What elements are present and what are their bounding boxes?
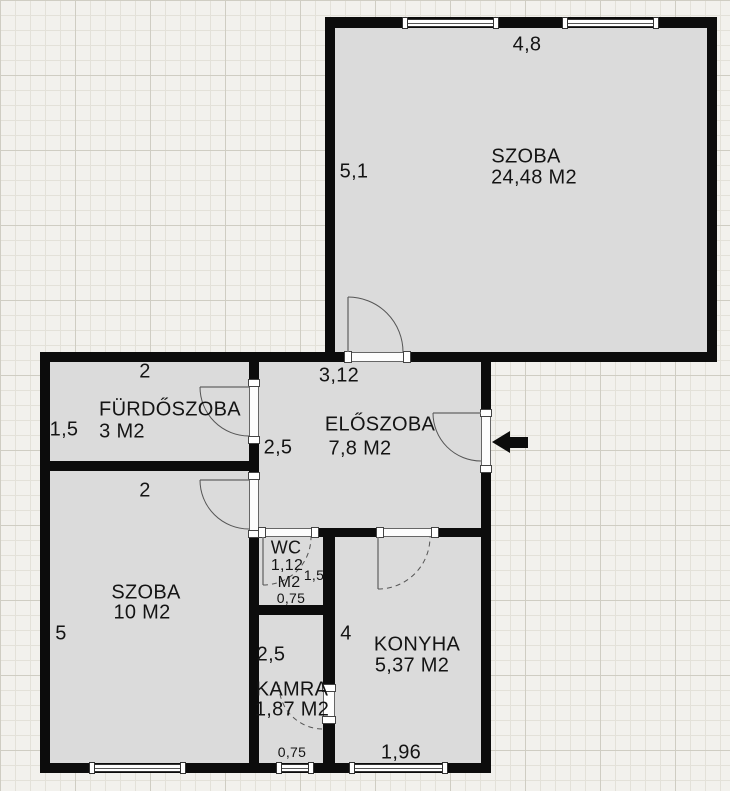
dim-szoba-nagy-width: 4,8: [513, 34, 542, 57]
dim-szoba-kis-height: 5: [55, 623, 66, 646]
dim-wc-width: 0,75: [277, 590, 305, 606]
dim-furdoszoba-width: 2: [139, 361, 150, 384]
dim-szoba-kis-width: 2: [139, 480, 150, 503]
door-opening-szoba-nagy: [345, 352, 410, 362]
dim-wc-height: 1,5: [304, 567, 324, 583]
window-konyha: [350, 764, 447, 772]
dim-eloszoba-height: 2,5: [264, 437, 293, 460]
window-kamra: [277, 764, 313, 772]
room-label-konyha: KONYHA: [374, 634, 460, 657]
dim-kamra-width: 0,75: [278, 744, 306, 760]
room-label-furdoszoba: FÜRDŐSZOBA: [99, 399, 241, 422]
room-floor-szoba-nagy: [335, 28, 707, 352]
wall-wc-bottom: [249, 605, 335, 615]
area-label-eloszoba: 7,8 M2: [329, 438, 392, 461]
window-szoba-nagy-1: [403, 19, 498, 27]
area-label-furdoszoba: 3 M2: [99, 421, 145, 444]
wall-middle-right-vertical: [323, 537, 335, 763]
wall-szoba-nagy-right: [707, 17, 717, 362]
dim-szoba-nagy-height: 5,1: [340, 161, 369, 184]
dim-furdoszoba-height: 1,5: [50, 419, 79, 442]
floor-plan: 4,8 5,1 SZOBA 24,48 M2 2 1,5 FÜRDŐSZOBA …: [0, 0, 730, 791]
wall-szoba-nagy-left: [325, 17, 335, 362]
area-label-szoba-nagy: 24,48 M2: [491, 167, 577, 190]
wall-outer-left: [40, 352, 50, 773]
door-opening-wc: [259, 528, 318, 537]
door-opening-furdoszoba: [249, 380, 259, 443]
area-label-konyha: 5,37 M2: [375, 655, 449, 678]
area-label-kamra: 1,87 M2: [255, 699, 329, 722]
room-label-szoba-nagy: SZOBA: [491, 146, 560, 169]
dim-konyha-width: 1,96: [381, 742, 421, 765]
window-szoba-nagy-2: [563, 19, 658, 27]
dim-konyha-height: 4: [340, 623, 351, 646]
dim-eloszoba-width: 3,12: [319, 365, 359, 388]
entrance-door-opening: [481, 410, 491, 472]
wall-furdoszoba-bottom: [40, 461, 259, 471]
dim-kamra-height: 2,5: [257, 644, 286, 667]
door-opening-konyha: [377, 528, 438, 537]
room-label-eloszoba: ELŐSZOBA: [325, 414, 435, 437]
area-label-szoba-kis: 10 M2: [113, 602, 170, 625]
window-szoba-kis: [90, 764, 185, 772]
area-value-wc: 1,12: [271, 557, 303, 575]
room-label-wc: WC: [271, 538, 302, 559]
entrance-arrow-icon: [492, 431, 528, 453]
